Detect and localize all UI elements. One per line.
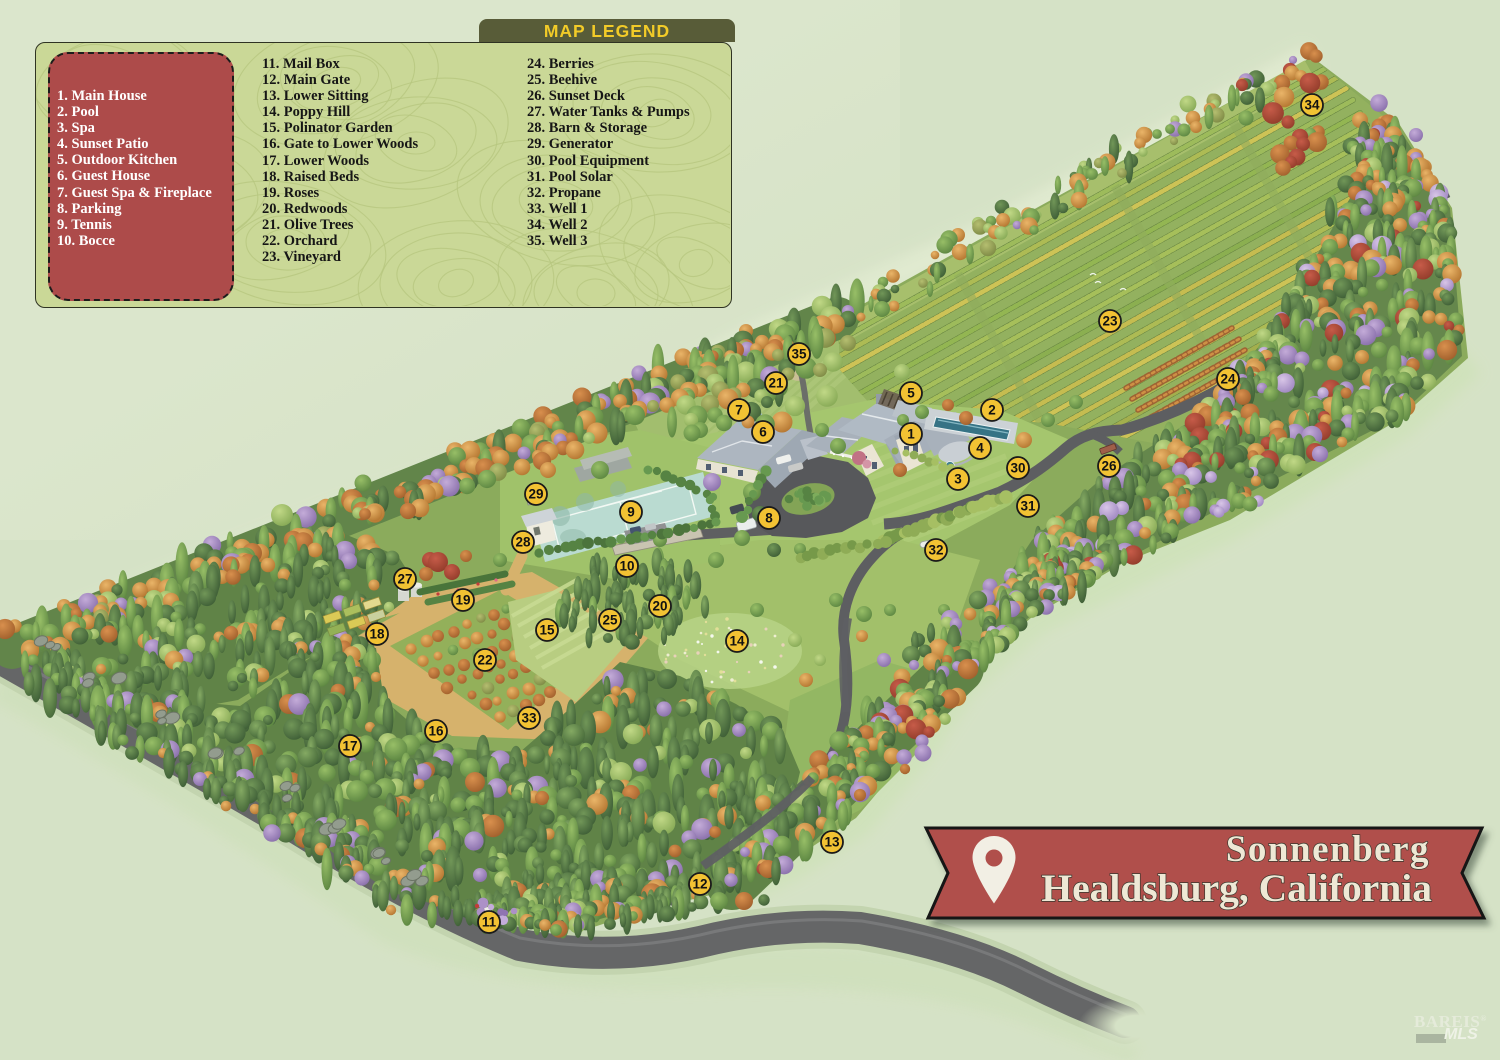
svg-text:32: 32 [928,543,943,558]
svg-text:6: 6 [759,425,767,440]
svg-text:Sonnenberg: Sonnenberg [1226,829,1430,870]
svg-text:5: 5 [907,386,915,401]
svg-text:7: 7 [735,403,743,418]
svg-text:16: 16 [428,724,444,739]
svg-text:31: 31 [1020,499,1036,514]
svg-text:9: 9 [627,505,635,520]
svg-text:18: 18 [369,627,385,642]
svg-text:26: 26 [1101,459,1117,474]
svg-text:8: 8 [765,511,773,526]
svg-text:15: 15 [539,623,555,638]
svg-text:Healdsburg, California: Healdsburg, California [1041,866,1432,910]
svg-text:34: 34 [1304,98,1320,113]
svg-text:33: 33 [521,711,537,726]
svg-text:22: 22 [477,653,492,668]
svg-text:28: 28 [515,535,531,550]
svg-text:10: 10 [619,559,634,574]
svg-text:12: 12 [692,877,707,892]
svg-text:1: 1 [907,427,915,442]
svg-text:11: 11 [482,915,497,930]
svg-text:17: 17 [342,739,357,754]
svg-text:2: 2 [988,403,996,418]
svg-text:35: 35 [791,347,807,362]
svg-text:3: 3 [954,472,962,487]
svg-text:20: 20 [652,599,667,614]
svg-text:13: 13 [824,835,840,850]
svg-text:29: 29 [528,487,543,502]
svg-text:14: 14 [729,634,745,649]
svg-text:4: 4 [976,441,984,456]
svg-text:24: 24 [1220,372,1236,387]
svg-text:25: 25 [602,613,618,628]
svg-text:23: 23 [1102,314,1118,329]
svg-text:21: 21 [768,376,784,391]
svg-text:27: 27 [397,572,412,587]
svg-text:30: 30 [1010,461,1025,476]
svg-text:19: 19 [455,593,470,608]
